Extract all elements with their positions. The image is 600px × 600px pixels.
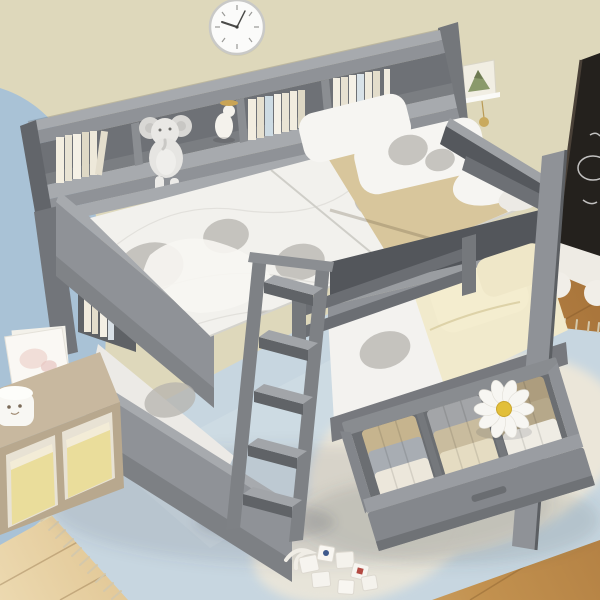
scene-canvas <box>0 0 600 600</box>
wall-clock <box>209 0 265 56</box>
round-toy <box>0 386 34 426</box>
bedroom-photo <box>0 0 600 600</box>
